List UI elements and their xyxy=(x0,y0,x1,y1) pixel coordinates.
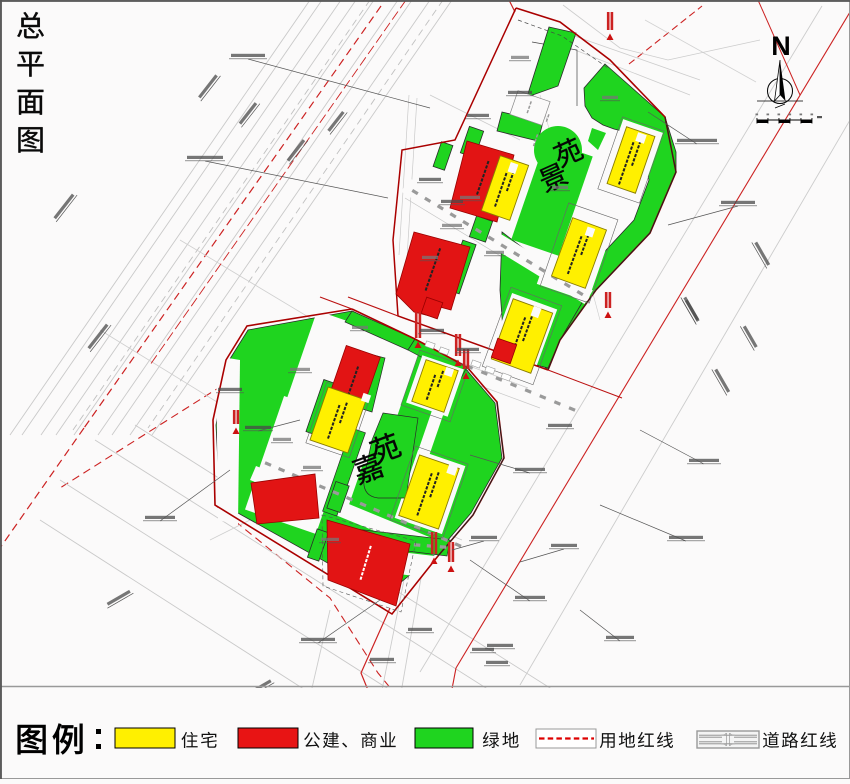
svg-text:N: N xyxy=(771,31,791,61)
